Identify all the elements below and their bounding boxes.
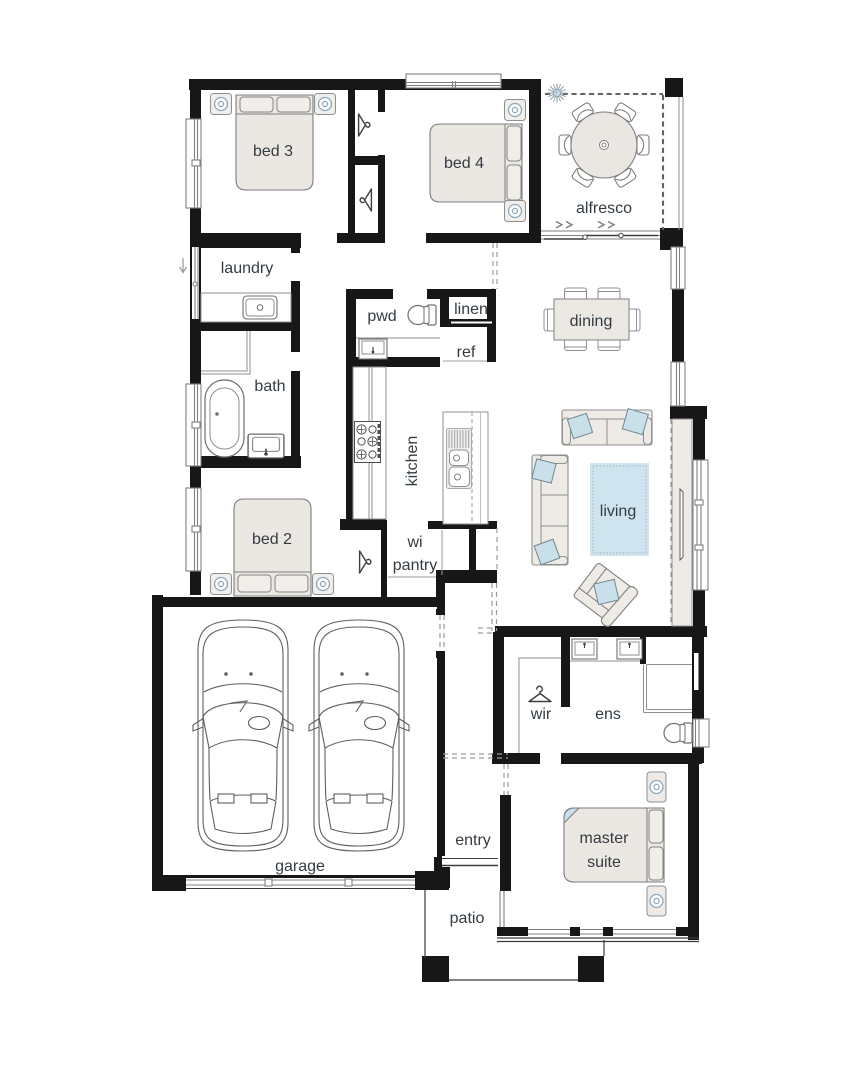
svg-text:entry: entry: [455, 832, 491, 849]
svg-text:suite: suite: [587, 854, 621, 871]
svg-text:wir: wir: [530, 706, 552, 723]
svg-text:master: master: [580, 830, 630, 847]
svg-text:wi: wi: [406, 534, 422, 551]
svg-text:ens: ens: [595, 706, 621, 723]
svg-text:dining: dining: [570, 313, 613, 330]
svg-text:linen: linen: [454, 301, 488, 318]
svg-text:pwd: pwd: [367, 308, 396, 325]
svg-text:living: living: [600, 503, 636, 520]
svg-text:laundry: laundry: [221, 260, 273, 277]
svg-text:pantry: pantry: [393, 557, 437, 574]
svg-text:ref: ref: [457, 344, 476, 361]
svg-text:bed 2: bed 2: [252, 531, 292, 548]
svg-text:kitchen: kitchen: [404, 436, 421, 487]
svg-text:garage: garage: [275, 858, 325, 875]
svg-text:bath: bath: [254, 378, 285, 395]
svg-text:alfresco: alfresco: [576, 200, 632, 217]
svg-text:bed 4: bed 4: [444, 155, 484, 172]
svg-text:bed 3: bed 3: [253, 143, 293, 160]
svg-text:patio: patio: [450, 910, 485, 927]
